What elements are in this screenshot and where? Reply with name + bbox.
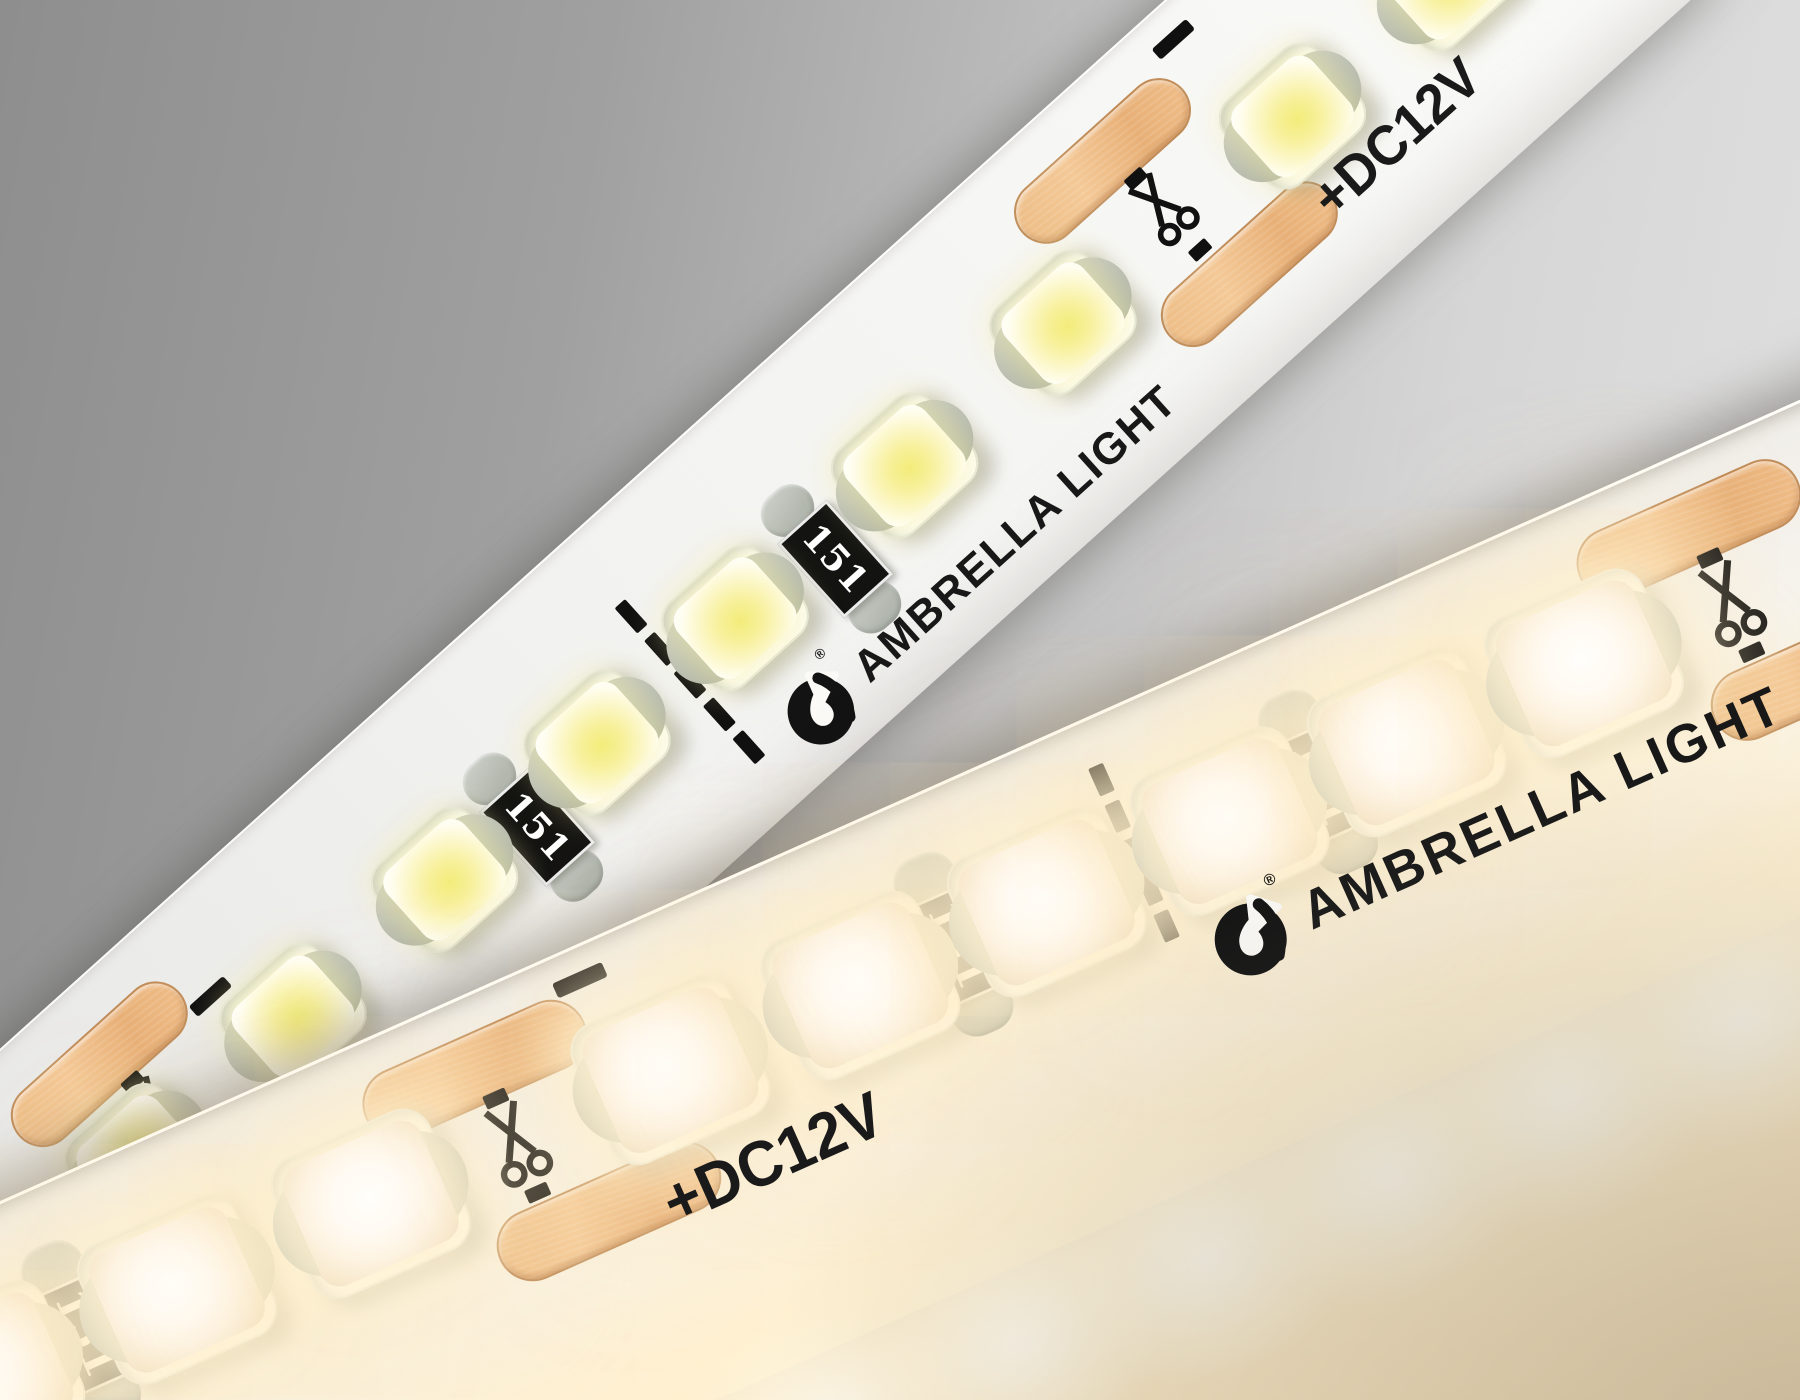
led-emitter xyxy=(82,1200,272,1380)
led-emitter xyxy=(276,1114,466,1294)
resistor-code: 151 xyxy=(796,518,875,600)
led-emitter xyxy=(1377,0,1515,47)
led-emitter xyxy=(528,674,666,810)
minus-polarity-mark xyxy=(1152,19,1196,60)
led-emitter xyxy=(994,255,1132,391)
led-chip xyxy=(979,239,1148,407)
product-photo-led-strips: 151151+DC12V®AMBRELLA LIGHT151151151+DC1… xyxy=(0,0,1800,1400)
led-emitter xyxy=(376,812,514,948)
led-emitter xyxy=(836,397,974,533)
led-chip xyxy=(261,1099,480,1308)
scissors-icon xyxy=(1687,553,1773,654)
cut-line-dash xyxy=(615,599,648,634)
scissors-icon xyxy=(473,1094,559,1195)
corner-shade xyxy=(650,650,1800,1400)
minus-polarity-mark xyxy=(552,962,608,999)
